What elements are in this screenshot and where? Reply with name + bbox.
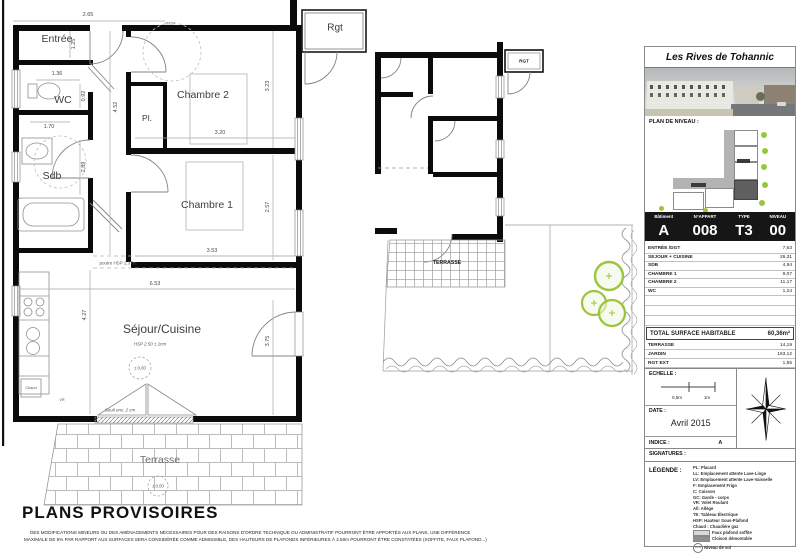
garden-terrasse-label: TERRASSE [433, 260, 461, 266]
legend-niveau-row: ±0.00Niveau de sol [693, 543, 772, 553]
swatch-label: Faux plafond soffite [712, 530, 752, 535]
legend-items: PL: Placard LL: Emplacement attente Lave… [693, 465, 772, 553]
signatures-label: SIGNATURES : [645, 449, 795, 457]
project-title: Les Rives de Tohannic [645, 47, 795, 68]
area-label: CHAMBRE 2 [648, 280, 677, 285]
area-row: SDB4,94 [645, 262, 795, 271]
sheet-edge-line [2, 0, 4, 446]
dim-ch1-h: 2.57 [265, 202, 271, 213]
area-label: SDB [648, 263, 658, 268]
value-niveau: 00 [761, 222, 796, 239]
garden-rgt-label: RGT [519, 59, 529, 64]
legend-item: LL: Emplacement attente Lave-Linge [693, 471, 772, 477]
extra-row: RGT EXT1,55 [645, 359, 795, 368]
garden-plan-walls [375, 42, 503, 242]
main-plan-bay-door [95, 384, 196, 423]
scale-date-block: ECHELLE : 0,5m 1m DATE : Avril 2015 INDI… [645, 368, 795, 448]
dim-sdb-h: 2.89 [81, 162, 87, 173]
garden-plan-rgt-box [505, 50, 543, 94]
room-label-sdb: Sdb [43, 170, 62, 182]
indice-value: A [718, 440, 732, 446]
extra-label: TERRASSE [648, 343, 674, 348]
niveau-sol-icon: ±0.00 [693, 543, 703, 553]
date-value: Avril 2015 [645, 418, 736, 428]
north-compass-icon [739, 373, 793, 445]
faux-plafond-swatch [693, 530, 710, 536]
dim-hall-h: 4.52 [113, 102, 119, 113]
extra-label: RGT EXT [648, 361, 669, 366]
room-label-rgt: Rgt [327, 23, 343, 34]
header-batiment: Bâtiment [645, 214, 683, 219]
indice-label: INDICE : [649, 440, 670, 446]
dim-sejour-right-h: 3.75 [265, 336, 271, 347]
value-appart: 008 [683, 222, 728, 239]
dim-entree-w: 2.65 [83, 12, 94, 18]
legende-label: LÉGENDE : [645, 465, 693, 553]
area-value: 11,17 [780, 280, 792, 285]
extra-value: 1,55 [783, 361, 792, 366]
extra-value: 14,19 [780, 343, 792, 348]
area-value: 9,07 [783, 272, 792, 277]
header-niveau: NIVEAU [761, 214, 796, 219]
room-label-chambre2: Chambre 2 [177, 89, 229, 101]
area-row-empty [645, 306, 795, 316]
dim-ch1-w: 3.53 [207, 248, 218, 254]
plan-sheet: Entrée WC Sdb Chambre 2 Chambre 1 Séjour… [0, 0, 800, 553]
scale-bar [657, 381, 727, 401]
header-appart: N°APPART [683, 214, 728, 219]
note-seuil: Seuil env. 2 cm [105, 408, 135, 413]
area-row: ENTRÉE /DGT7,63 [645, 245, 795, 254]
room-label-terrasse: Terrasse [140, 454, 180, 466]
area-label: CHAMBRE 1 [648, 272, 677, 277]
area-value: 1,24 [783, 289, 792, 294]
dim-sdb-w: 1.70 [44, 124, 55, 130]
project-photo [645, 68, 795, 116]
room-label-sejour: Séjour/Cuisine [123, 322, 201, 336]
date-cell: DATE : Avril 2015 [645, 405, 736, 436]
level-marker-terrasse: ± 0.00 [152, 484, 164, 489]
site-plan-map [645, 126, 795, 212]
note-poutre: poutre HSP 2.37m [100, 261, 137, 266]
note-circle-150: Ø150 [165, 21, 175, 26]
area-row: SEJOUR + CUISINE26,31 [645, 254, 795, 263]
area-value: 4,94 [783, 263, 792, 268]
dim-ch2-w: 3.20 [215, 130, 226, 136]
legend-item: LV: Emplacement attente Lave-Vaisselle [693, 477, 772, 483]
note-hsp: HSP 2.50 ± 2cm [134, 342, 167, 347]
area-label: WC [648, 289, 656, 294]
apartment-table-values: A 008 T3 00 [645, 220, 795, 241]
area-row: CHAMBRE 211,17 [645, 279, 795, 288]
area-row-empty [645, 296, 795, 306]
signatures-cell: SIGNATURES : [645, 448, 795, 461]
extra-row: TERRASSE14,19 [645, 341, 795, 350]
dim-entree-h: 1.25 [71, 39, 77, 50]
garden-plan-trees [582, 262, 625, 326]
value-type: T3 [728, 222, 761, 239]
dim-ch2-h: 3.23 [265, 81, 271, 92]
main-plan-fixtures [18, 74, 247, 397]
footer-disclaimer-line2: MAXIMALE DE 5% PAR RAPPORT AUX SURFACES … [24, 537, 487, 542]
apartment-table-header: Bâtiment N°APPART TYPE NIVEAU [645, 212, 795, 220]
echelle-label: ECHELLE : [645, 369, 736, 377]
area-row-empty [645, 316, 795, 326]
scale-tick-1: 1m [704, 395, 710, 400]
cloison-swatch [693, 536, 710, 542]
note-chaud: Chaud [25, 386, 36, 390]
room-label-entree: Entrée [42, 33, 73, 45]
dim-wc-h: 0.92 [81, 91, 87, 102]
area-row: CHAMBRE 19,07 [645, 271, 795, 280]
area-value: 26,31 [780, 255, 792, 260]
dim-wc-w: 1.36 [52, 71, 63, 77]
main-plan-rgt-box [302, 10, 366, 84]
niveau-sol-label: Niveau de sol [704, 545, 731, 550]
room-label-wc: WC [54, 94, 72, 106]
room-label-placard: Pl. [142, 113, 152, 123]
level-marker-sejour: ± 0.00 [134, 366, 146, 371]
room-label-chambre1: Chambre 1 [181, 199, 233, 211]
area-row: WC1,24 [645, 288, 795, 297]
plan-niveau-label: PLAN DE NIVEAU : [645, 116, 795, 126]
legend-block: LÉGENDE : PL: Placard LL: Emplacement at… [645, 461, 795, 553]
scale-cell: ECHELLE : 0,5m 1m [645, 369, 736, 405]
dim-sejour-w: 6.53 [150, 281, 161, 287]
area-label: ENTRÉE /DGT [648, 246, 680, 251]
extra-label: JARDIN [648, 352, 666, 357]
date-label: DATE : [645, 406, 736, 414]
scale-tick-05: 0,5m [672, 395, 682, 400]
total-label: TOTAL SURFACE HABITABLE [650, 331, 736, 337]
note-vr: VR [59, 398, 64, 402]
total-value: 60,36m² [768, 331, 790, 337]
value-batiment: A [645, 222, 683, 239]
extra-row: JARDIN163,12 [645, 350, 795, 359]
header-type: TYPE [728, 214, 761, 219]
extra-value: 163,12 [777, 352, 792, 357]
area-value: 7,63 [783, 246, 792, 251]
legend-swatch-row: Cloison démontable [693, 536, 772, 542]
footer-heading: PLANS PROVISOIRES [22, 503, 218, 523]
total-surface-row: TOTAL SURFACE HABITABLE 60,36m² [646, 327, 794, 340]
swatch-label: Cloison démontable [712, 536, 752, 541]
indice-cell: INDICE : A [645, 436, 736, 448]
title-block: Les Rives de Tohannic PLAN DE NIVEAU : [644, 46, 796, 547]
dim-sejour-h: 4.27 [82, 310, 88, 321]
main-plan-walls [13, 0, 302, 422]
footer-disclaimer-line1: DES MODIFICATIONS MINEURS OU DES AMÉNAGE… [30, 530, 471, 535]
area-label: SEJOUR + CUISINE [648, 255, 693, 260]
